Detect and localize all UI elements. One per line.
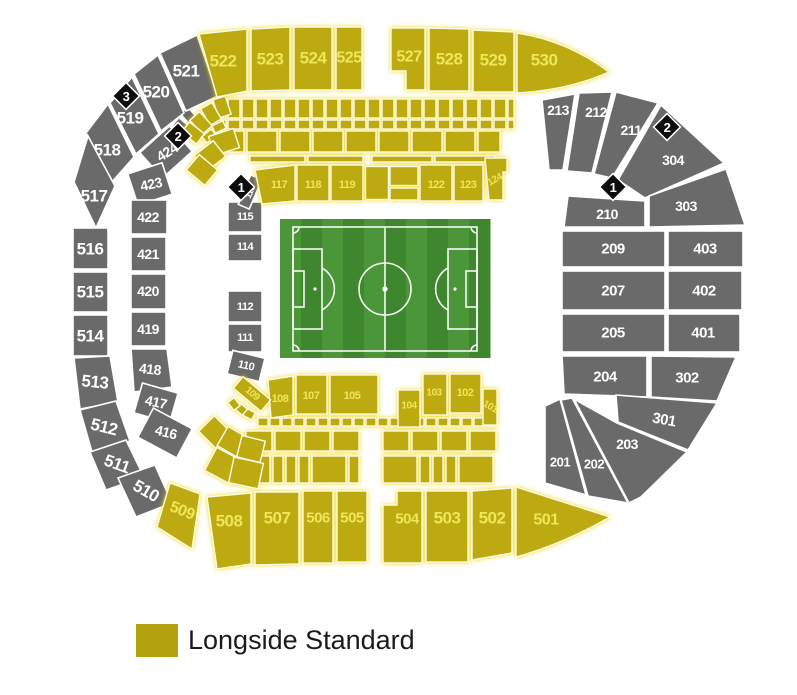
section-210: 210 bbox=[564, 196, 645, 227]
section-528[interactable]: 528 bbox=[429, 28, 469, 91]
seat-block bbox=[450, 418, 460, 426]
section-101-shape[interactable] bbox=[483, 389, 497, 425]
seat-block bbox=[382, 99, 394, 118]
section-420-shape bbox=[131, 274, 166, 309]
section-207: 207 bbox=[562, 271, 665, 310]
section-523[interactable]: 523 bbox=[251, 27, 290, 91]
seat-block bbox=[480, 120, 492, 129]
seat-block bbox=[242, 120, 254, 129]
seat-block bbox=[346, 131, 376, 152]
seat-block bbox=[368, 99, 380, 118]
seat-block bbox=[284, 120, 296, 129]
seat-block bbox=[508, 120, 514, 129]
section-114: 114 bbox=[228, 234, 262, 261]
seat-block bbox=[382, 120, 394, 129]
section-507-shape[interactable] bbox=[255, 492, 299, 565]
seat-block bbox=[354, 418, 364, 426]
section-514-shape bbox=[73, 315, 108, 356]
section-101[interactable]: 101 bbox=[481, 389, 500, 425]
section-103-shape[interactable] bbox=[423, 374, 447, 415]
seat-block bbox=[333, 431, 359, 451]
section-508-shape[interactable] bbox=[207, 493, 251, 569]
section-530[interactable]: 530 bbox=[517, 33, 609, 93]
section-114-shape bbox=[228, 234, 262, 261]
seat-block bbox=[379, 131, 409, 152]
section-421: 421 bbox=[131, 237, 166, 271]
seat-block bbox=[284, 99, 296, 118]
section-102-shape[interactable] bbox=[450, 374, 481, 413]
seat-block bbox=[438, 418, 448, 426]
seat-block bbox=[280, 131, 310, 152]
pitch-stripe bbox=[469, 219, 491, 358]
seat-block bbox=[452, 120, 464, 129]
pitch-stripe bbox=[322, 219, 344, 358]
section-104-shape[interactable] bbox=[398, 390, 420, 427]
seat-block bbox=[494, 120, 506, 129]
seat-block bbox=[256, 99, 268, 118]
seat-block bbox=[298, 120, 310, 129]
seat-block bbox=[452, 99, 464, 118]
section-508[interactable]: 508 bbox=[207, 493, 251, 569]
legend-label: Longside Standard bbox=[188, 625, 415, 656]
section-514: 514 bbox=[73, 315, 108, 356]
seat-block bbox=[247, 131, 277, 152]
section-123[interactable]: 123 bbox=[454, 165, 483, 201]
seat-block bbox=[410, 120, 422, 129]
section-118-shape[interactable] bbox=[297, 165, 329, 201]
seat-block bbox=[354, 99, 366, 118]
seat-block bbox=[372, 156, 432, 162]
seat-block bbox=[438, 99, 450, 118]
section-302: 302 bbox=[651, 356, 736, 401]
section-528-shape[interactable] bbox=[429, 28, 469, 91]
section-505-shape[interactable] bbox=[337, 491, 367, 562]
section-110: 110 bbox=[227, 350, 265, 381]
seat-block bbox=[349, 456, 359, 483]
seat-block bbox=[318, 418, 328, 426]
seat-block bbox=[412, 131, 442, 152]
section-516-shape bbox=[73, 228, 108, 269]
section-402-shape bbox=[668, 271, 742, 310]
seat-block bbox=[420, 456, 430, 483]
section-422: 422 bbox=[131, 200, 167, 234]
section-105-shape[interactable] bbox=[330, 375, 378, 414]
section-402: 402 bbox=[668, 271, 742, 310]
seat-block bbox=[462, 418, 472, 426]
section-302-shape bbox=[651, 356, 736, 401]
section-419: 419 bbox=[131, 312, 166, 346]
seat-block bbox=[270, 99, 282, 118]
section-204-shape bbox=[562, 356, 647, 397]
stadium-map-svg: 5215205195185175165155145135125115104244… bbox=[0, 0, 797, 575]
seat-block bbox=[426, 418, 436, 426]
section-205-shape bbox=[562, 314, 665, 352]
section-119-shape[interactable] bbox=[331, 165, 363, 201]
section-112: 112 bbox=[228, 291, 262, 322]
section-108[interactable]: 108 bbox=[268, 376, 293, 418]
seat-block bbox=[390, 167, 418, 186]
seat-block bbox=[326, 120, 338, 129]
section-122-shape[interactable] bbox=[420, 165, 452, 201]
seat-block bbox=[368, 120, 380, 129]
section-515: 515 bbox=[73, 272, 108, 312]
seat-block bbox=[424, 99, 436, 118]
pitch-stripe bbox=[343, 219, 365, 358]
section-105[interactable]: 105 bbox=[330, 375, 378, 414]
section-506-shape[interactable] bbox=[303, 491, 333, 563]
seat-block bbox=[378, 418, 388, 426]
seat-block bbox=[466, 99, 478, 118]
section-403-shape bbox=[668, 231, 743, 267]
seat-block bbox=[508, 99, 514, 118]
seat-block bbox=[250, 156, 305, 162]
seat-block bbox=[304, 431, 330, 451]
section-505[interactable]: 505 bbox=[337, 491, 367, 562]
seat-block bbox=[275, 431, 301, 451]
seat-block bbox=[441, 431, 467, 451]
seat-block bbox=[446, 456, 456, 483]
section-513-shape bbox=[74, 356, 118, 409]
section-422-shape bbox=[131, 200, 167, 234]
section-504[interactable]: 504 bbox=[383, 491, 422, 563]
seat-block bbox=[258, 418, 268, 426]
section-104[interactable]: 104 bbox=[398, 390, 420, 427]
section-513: 513 bbox=[74, 356, 118, 409]
seat-block bbox=[410, 99, 422, 118]
seat-block bbox=[228, 120, 240, 129]
section-119[interactable]: 119 bbox=[331, 165, 363, 201]
section-524-shape[interactable] bbox=[294, 27, 332, 90]
section-525[interactable]: 525 bbox=[336, 27, 362, 90]
section-118[interactable]: 118 bbox=[297, 165, 329, 201]
section-403: 403 bbox=[668, 231, 743, 267]
section-124-shape[interactable] bbox=[485, 158, 507, 200]
seat-block bbox=[330, 418, 340, 426]
seat-block bbox=[478, 131, 500, 152]
section-117-shape[interactable] bbox=[255, 165, 295, 204]
pitch-stripe bbox=[427, 219, 449, 358]
seat-block bbox=[396, 120, 408, 129]
seat-block bbox=[299, 456, 309, 483]
seat-block bbox=[390, 188, 418, 200]
section-502[interactable]: 502 bbox=[472, 488, 512, 560]
section-107[interactable]: 107 bbox=[296, 375, 327, 414]
seat-block bbox=[445, 131, 475, 152]
seat-block bbox=[312, 99, 324, 118]
seat-block bbox=[480, 99, 492, 118]
section-421-shape bbox=[131, 237, 166, 271]
seat-block bbox=[298, 99, 310, 118]
seat-block bbox=[366, 167, 389, 200]
seat-block bbox=[294, 418, 304, 426]
section-117[interactable]: 117 bbox=[255, 165, 295, 204]
section-507[interactable]: 507 bbox=[255, 492, 299, 565]
seat-block bbox=[326, 99, 338, 118]
seat-block bbox=[342, 418, 352, 426]
pitch-stripe bbox=[385, 219, 407, 358]
seat-block bbox=[312, 120, 324, 129]
seat-block bbox=[270, 418, 280, 426]
seat-block bbox=[282, 418, 292, 426]
seat-block bbox=[340, 120, 352, 129]
seat-block bbox=[412, 431, 438, 451]
section-108-shape[interactable] bbox=[268, 376, 293, 418]
seat-block bbox=[354, 120, 366, 129]
section-210-shape bbox=[564, 196, 645, 227]
seat-block bbox=[383, 431, 409, 451]
section-401-shape bbox=[668, 314, 740, 352]
section-503[interactable]: 503 bbox=[426, 491, 468, 562]
seat-block bbox=[229, 457, 264, 489]
section-502-shape[interactable] bbox=[472, 488, 512, 560]
seat-block bbox=[494, 99, 506, 118]
section-420: 420 bbox=[131, 274, 166, 309]
section-209: 209 bbox=[562, 231, 665, 267]
section-103[interactable]: 103 bbox=[423, 374, 447, 415]
section-523-shape[interactable] bbox=[251, 27, 290, 91]
seat-block bbox=[286, 456, 296, 483]
section-419-shape bbox=[131, 312, 166, 346]
penalty-spot bbox=[313, 287, 316, 290]
seat-block bbox=[242, 99, 254, 118]
seat-block bbox=[396, 99, 408, 118]
section-112-shape bbox=[228, 291, 262, 322]
section-401: 401 bbox=[668, 314, 740, 352]
seat-block bbox=[308, 156, 363, 162]
section-529-shape[interactable] bbox=[473, 30, 514, 92]
section-111-shape bbox=[228, 324, 262, 352]
section-525-shape[interactable] bbox=[336, 27, 362, 90]
section-503-shape[interactable] bbox=[426, 491, 468, 562]
seat-block bbox=[270, 120, 282, 129]
section-506[interactable]: 506 bbox=[303, 491, 333, 563]
center-spot bbox=[382, 286, 387, 291]
pitch-stripe bbox=[406, 219, 428, 358]
section-107-shape[interactable] bbox=[296, 375, 327, 414]
penalty-spot bbox=[453, 287, 456, 290]
section-124[interactable]: 124 bbox=[485, 158, 507, 200]
pitch-stripe bbox=[280, 219, 302, 358]
section-110-shape bbox=[227, 350, 265, 381]
seat-block bbox=[313, 131, 343, 152]
seat-block bbox=[340, 99, 352, 118]
seat-block bbox=[424, 120, 436, 129]
seat-block bbox=[306, 418, 316, 426]
seat-block bbox=[383, 456, 417, 483]
seat-block bbox=[459, 456, 493, 483]
section-515-shape bbox=[73, 272, 108, 312]
section-529[interactable]: 529 bbox=[473, 30, 514, 92]
section-102[interactable]: 102 bbox=[450, 374, 481, 413]
section-530-shape[interactable] bbox=[517, 33, 609, 93]
football-pitch bbox=[280, 219, 491, 358]
section-524[interactable]: 524 bbox=[294, 27, 332, 90]
seat-block bbox=[438, 120, 450, 129]
section-209-shape bbox=[562, 231, 665, 267]
seat-block bbox=[256, 120, 268, 129]
section-123-shape[interactable] bbox=[454, 165, 483, 201]
stadium-seat-map: 5215205195185175165155145135125115104244… bbox=[0, 0, 797, 695]
seat-block bbox=[433, 456, 443, 483]
seat-block bbox=[273, 456, 283, 483]
section-204: 204 bbox=[562, 356, 647, 397]
legend: Longside Standard bbox=[136, 624, 415, 657]
seat-block bbox=[466, 120, 478, 129]
section-111: 111 bbox=[228, 324, 262, 352]
legend-swatch-longside-standard bbox=[136, 624, 178, 657]
seat-block bbox=[470, 431, 496, 451]
section-205: 205 bbox=[562, 314, 665, 352]
section-527[interactable]: 527 bbox=[391, 28, 425, 90]
section-527-shape[interactable] bbox=[391, 28, 425, 90]
seat-block bbox=[366, 418, 376, 426]
section-122[interactable]: 122 bbox=[420, 165, 452, 201]
section-207-shape bbox=[562, 271, 665, 310]
seat-block bbox=[312, 456, 346, 483]
section-516: 516 bbox=[73, 228, 108, 269]
section-504-shape[interactable] bbox=[383, 491, 422, 563]
pitch-stripe bbox=[364, 219, 386, 358]
